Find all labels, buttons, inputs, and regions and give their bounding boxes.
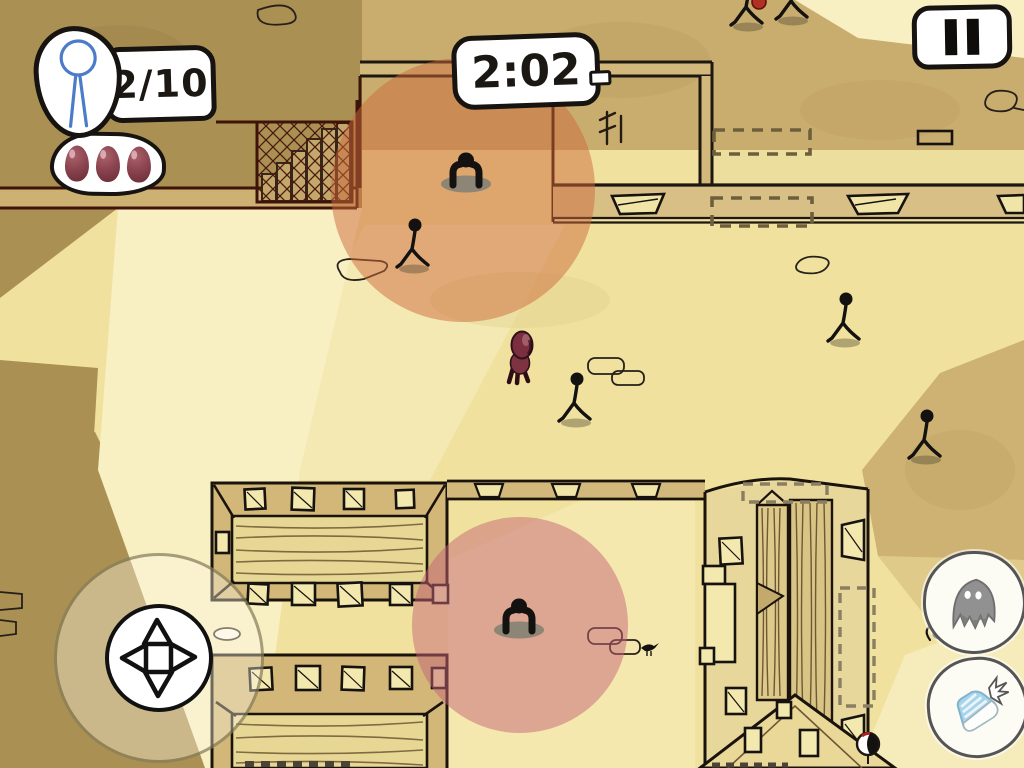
character-counter-value: 2/10 bbox=[111, 61, 209, 108]
life-capsule-icon bbox=[127, 146, 152, 182]
stick-figure-icon bbox=[37, 31, 118, 134]
pause-icon bbox=[967, 19, 980, 55]
wall-courtyard-connector bbox=[447, 481, 705, 499]
life-capsule-icon bbox=[65, 145, 90, 181]
timer-value: 2:02 bbox=[470, 44, 581, 99]
dpad-right-arrow[interactable] bbox=[171, 644, 195, 671]
dpad-icon[interactable] bbox=[105, 604, 213, 712]
dpad-control[interactable] bbox=[54, 553, 264, 763]
character-counter-icon-bubble bbox=[32, 24, 124, 139]
level-timer: 2:02 bbox=[451, 31, 601, 110]
sneaker-icon bbox=[942, 672, 1012, 742]
dropped-item bbox=[752, 0, 766, 9]
life-capsule-icon bbox=[96, 146, 121, 182]
dpad-up-arrow[interactable] bbox=[144, 620, 171, 644]
lives-indicator bbox=[49, 131, 166, 197]
dpad-left-arrow[interactable] bbox=[122, 645, 146, 672]
game-screen: 2/10 2:02 bbox=[0, 0, 1024, 768]
ghost-icon bbox=[942, 566, 1008, 639]
building-hip-roof-upper bbox=[212, 483, 448, 607]
pause-icon bbox=[945, 19, 958, 55]
pause-button[interactable] bbox=[911, 4, 1012, 70]
dpad-down-arrow[interactable] bbox=[145, 672, 172, 696]
